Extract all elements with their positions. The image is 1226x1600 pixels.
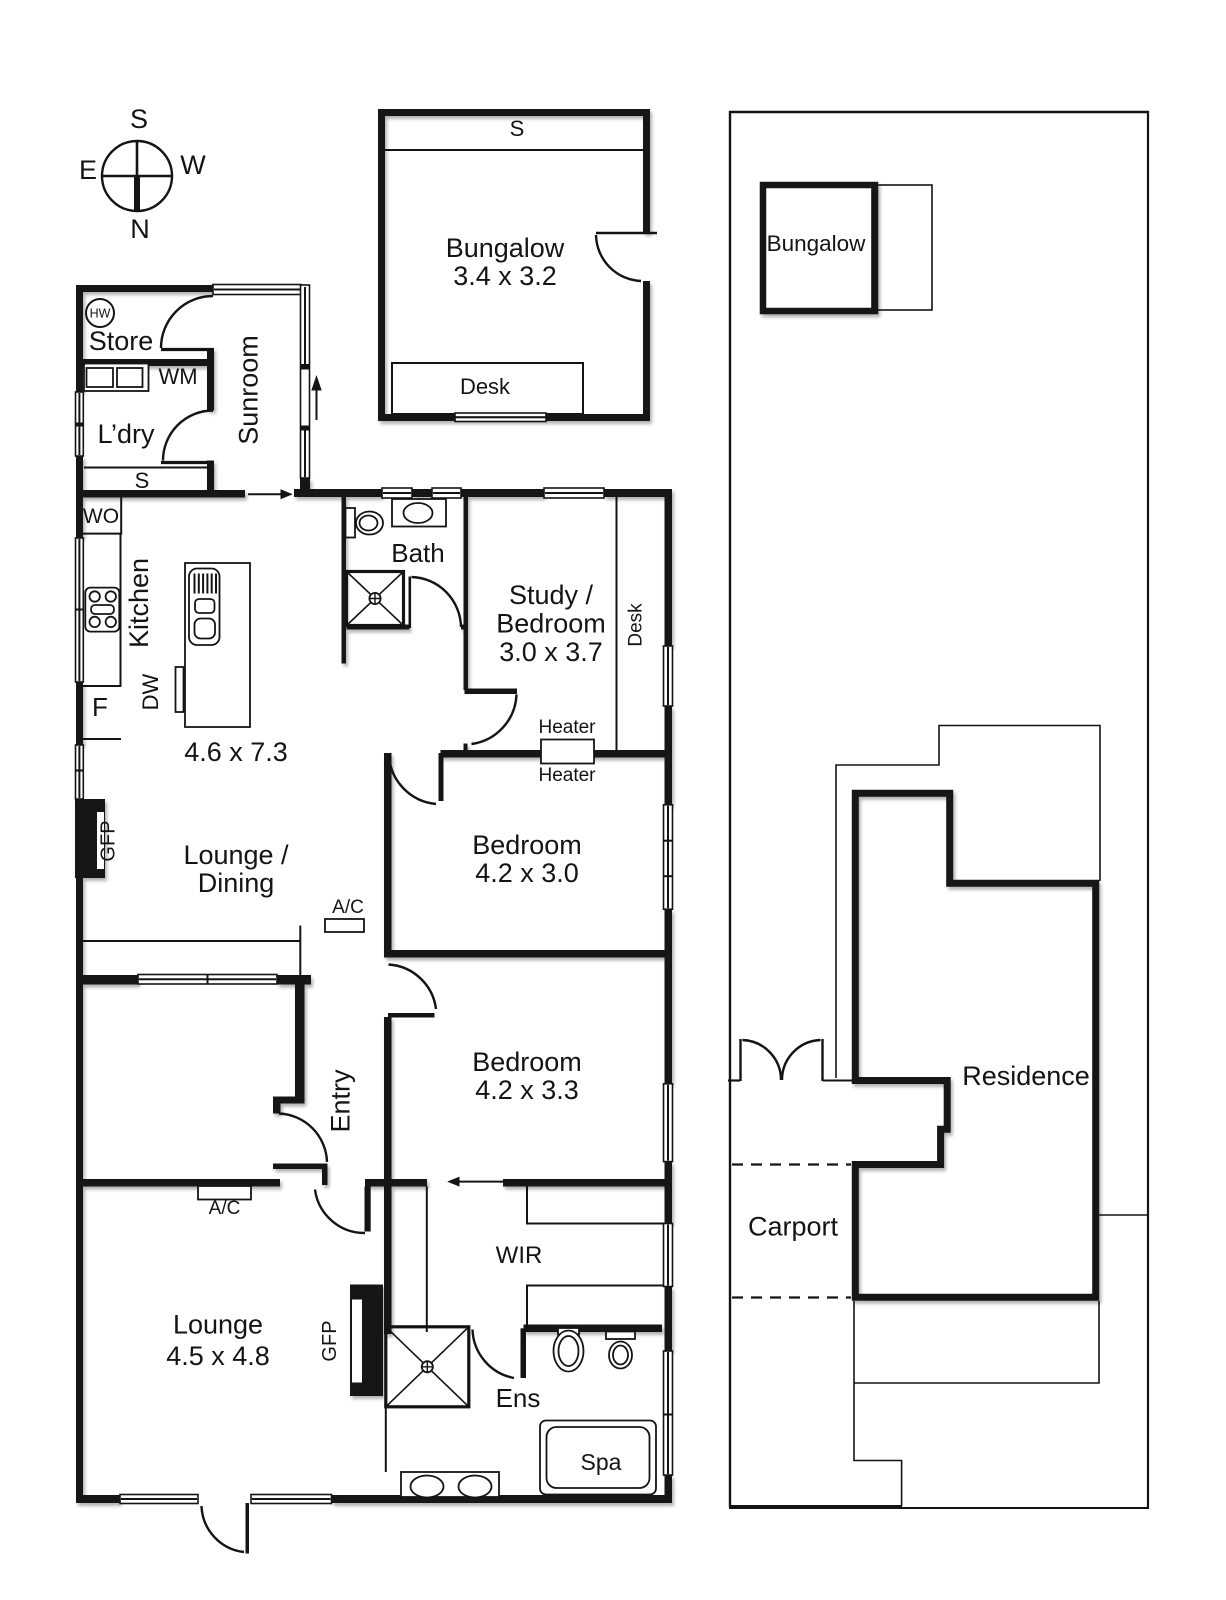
svg-text:DW: DW — [138, 673, 163, 710]
svg-text:WM: WM — [158, 364, 197, 389]
svg-text:Desk: Desk — [626, 603, 647, 647]
svg-text:N: N — [130, 214, 150, 244]
svg-text:Bath: Bath — [391, 538, 445, 568]
svg-text:4.6 x 7.3: 4.6 x 7.3 — [184, 737, 288, 767]
svg-text:A/C: A/C — [332, 897, 364, 918]
svg-text:Bungalow: Bungalow — [767, 231, 867, 256]
svg-text:A/C: A/C — [209, 1198, 241, 1219]
svg-text:Spa: Spa — [581, 1449, 622, 1475]
svg-text:Bedroom: Bedroom — [472, 1047, 582, 1077]
svg-text:Carport: Carport — [748, 1212, 839, 1242]
svg-text:Heater: Heater — [538, 717, 596, 738]
svg-text:E: E — [79, 155, 97, 185]
svg-text:Entry: Entry — [326, 1069, 356, 1133]
svg-text:F: F — [92, 692, 108, 722]
svg-text:GFP: GFP — [319, 1320, 341, 1361]
svg-text:Store: Store — [89, 326, 154, 356]
svg-text:Dining: Dining — [198, 868, 275, 898]
svg-text:WO: WO — [83, 505, 119, 528]
svg-text:Lounge /: Lounge / — [183, 840, 289, 870]
svg-text:Ens: Ens — [496, 1383, 541, 1413]
svg-text:HW: HW — [90, 307, 111, 321]
svg-text:L’dry: L’dry — [97, 419, 155, 449]
svg-text:3.0 x 3.7: 3.0 x 3.7 — [499, 637, 603, 667]
svg-text:Bedroom: Bedroom — [472, 830, 582, 860]
svg-text:WIR: WIR — [496, 1242, 543, 1269]
svg-text:4.5 x 4.8: 4.5 x 4.8 — [166, 1341, 270, 1371]
svg-text:Bedroom: Bedroom — [496, 609, 606, 639]
svg-text:S: S — [510, 116, 525, 141]
svg-text:Desk: Desk — [460, 374, 511, 399]
svg-text:Study /: Study / — [509, 580, 594, 610]
svg-text:Kitchen: Kitchen — [124, 558, 154, 648]
svg-text:3.4 x 3.2: 3.4 x 3.2 — [453, 261, 557, 291]
svg-text:S: S — [130, 104, 148, 134]
svg-text:Lounge: Lounge — [173, 1310, 263, 1340]
svg-text:Residence: Residence — [962, 1061, 1090, 1091]
svg-text:GFP: GFP — [98, 820, 120, 861]
svg-text:Heater: Heater — [538, 765, 596, 786]
svg-text:4.2 x 3.0: 4.2 x 3.0 — [475, 858, 579, 888]
svg-text:S: S — [135, 468, 150, 493]
svg-text:W: W — [180, 150, 206, 180]
svg-text:4.2 x 3.3: 4.2 x 3.3 — [475, 1075, 579, 1105]
svg-text:Sunroom: Sunroom — [234, 335, 264, 445]
svg-text:Bungalow: Bungalow — [446, 233, 565, 263]
